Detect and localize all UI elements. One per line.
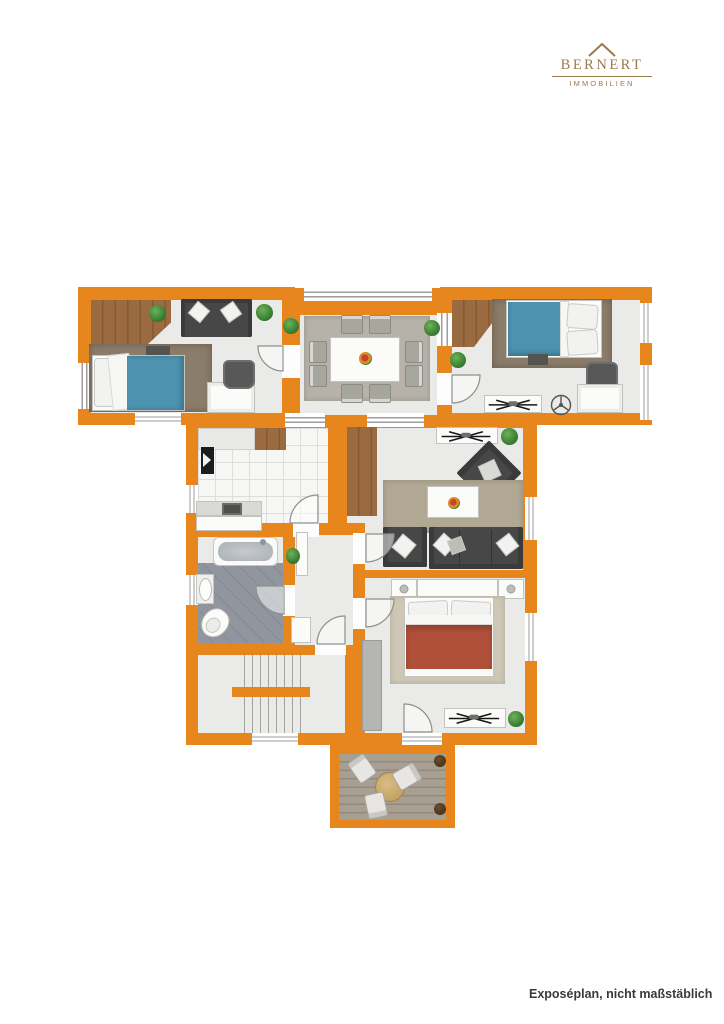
ceiling-fan-symbol (549, 393, 573, 417)
dark-mat (528, 354, 548, 365)
side-table-with-model (484, 395, 542, 413)
lamp (400, 585, 409, 594)
bathtub (213, 537, 278, 566)
stairs-landing-wall (232, 687, 310, 697)
roof-icon (552, 42, 652, 57)
hall-cabinet (291, 617, 311, 643)
sofa-seam (491, 530, 492, 566)
door-opening (315, 643, 346, 655)
bed-pillow (566, 303, 599, 330)
window (640, 303, 652, 343)
coffee-table (427, 486, 479, 518)
bathtub-faucet (260, 539, 266, 545)
bed-blanket-red (406, 625, 492, 669)
dining-chair (341, 315, 363, 334)
washbasin (196, 574, 214, 604)
washbasin-bowl (199, 578, 212, 601)
double-bed (404, 597, 494, 677)
caption: Exposéplan, nicht maßstäblich (529, 987, 712, 1001)
armchair (383, 527, 427, 567)
model-aircraft-icon (445, 709, 503, 726)
toilet-bowl (203, 615, 224, 636)
sofa-pillow (188, 301, 211, 324)
plant (283, 318, 299, 334)
wood-cabinet (347, 427, 377, 516)
window (135, 413, 181, 425)
refrigerator (201, 447, 214, 474)
planter-pot (434, 803, 446, 815)
brand-logo: BERNERT IMMOBILIEN (552, 42, 652, 88)
window (525, 613, 537, 661)
sofa-pillow (496, 533, 520, 557)
dining-chair (369, 315, 391, 334)
brand-subtitle: IMMOBILIEN (552, 79, 652, 88)
plant (149, 305, 166, 322)
door-opening (353, 598, 365, 629)
sofa (181, 299, 252, 337)
desk (577, 384, 623, 413)
side-table-with-model (444, 708, 506, 728)
desk-chair (223, 360, 255, 389)
bed-pillow (566, 329, 599, 356)
dining-chair (309, 365, 327, 387)
sofa (429, 527, 523, 569)
brand-name: BERNERT (552, 57, 652, 77)
plant (508, 711, 524, 727)
dining-chair (309, 341, 327, 363)
model-aircraft-icon (485, 396, 541, 412)
page: BERNERT IMMOBILIEN (0, 0, 724, 1024)
wall-opening (367, 413, 424, 427)
plant (450, 352, 466, 368)
bed-blanket-blue (127, 356, 184, 410)
plant (424, 320, 440, 336)
flower-centerpiece (359, 352, 372, 365)
armchair-pillow (391, 533, 416, 558)
bed-sheet-fold (406, 615, 492, 625)
refrigerator-door-mark (203, 453, 211, 467)
plant (256, 304, 273, 321)
door-opening (437, 373, 452, 405)
dining-chair (405, 341, 423, 363)
kitchen-wood-cabinet (255, 428, 286, 450)
window (640, 365, 652, 420)
wardrobe (362, 640, 382, 731)
door-opening (282, 345, 300, 378)
door-opening (353, 533, 365, 564)
sofa-pillow (447, 536, 466, 555)
planter-pot (434, 755, 446, 767)
bathtub-basin (218, 542, 273, 561)
flower-decor (448, 497, 460, 509)
plant (286, 548, 300, 564)
dining-chair (405, 365, 423, 387)
window (252, 733, 298, 745)
door-opening (283, 585, 295, 616)
dining-chair (369, 384, 391, 403)
kitchen-cabinet (196, 516, 262, 531)
lamp (507, 585, 516, 594)
window (525, 497, 537, 540)
terrace-door-threshold (402, 733, 442, 745)
sofa-pillow (220, 301, 242, 323)
plant (501, 428, 518, 445)
kitchen-sink (222, 503, 242, 515)
wall-opening (285, 413, 325, 427)
bed-blanket-blue (508, 302, 564, 356)
dining-chair (341, 384, 363, 403)
window (304, 288, 432, 301)
